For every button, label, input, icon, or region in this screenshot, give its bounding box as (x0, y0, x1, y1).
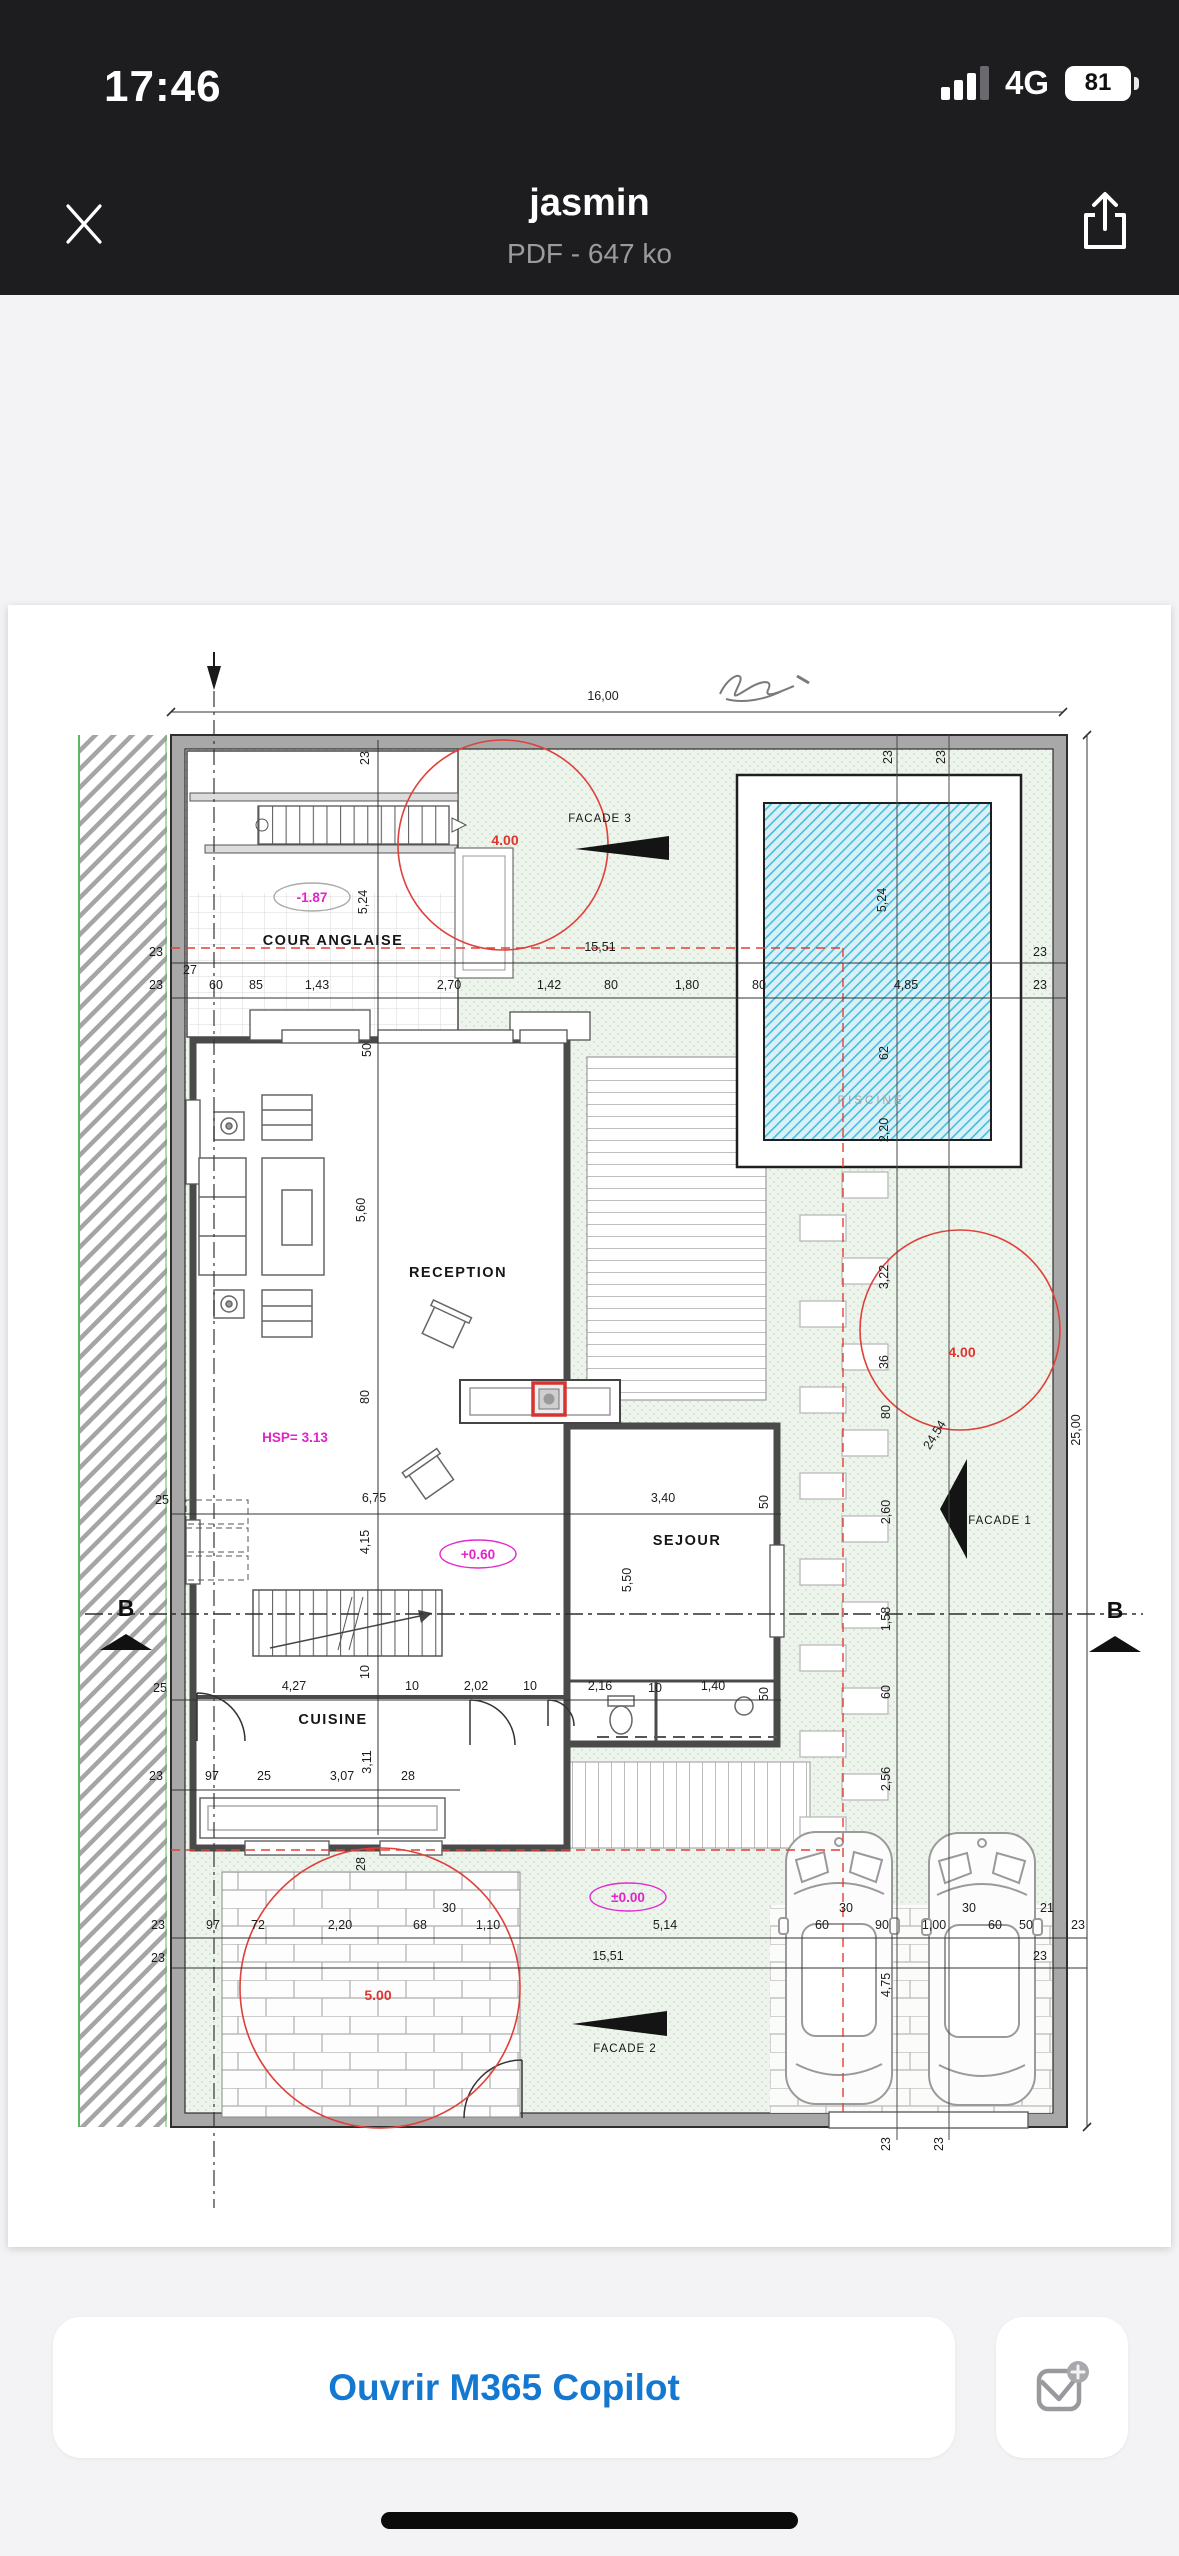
svg-text:30: 30 (962, 1901, 976, 1915)
svg-text:2,60: 2,60 (879, 1500, 893, 1524)
svg-text:80: 80 (358, 1390, 372, 1404)
share-icon (1078, 189, 1132, 253)
svg-text:25: 25 (257, 1769, 271, 1783)
status-right-cluster: 4G 81 (941, 64, 1131, 102)
svg-text:10: 10 (523, 1679, 537, 1693)
car-2 (922, 1833, 1042, 2105)
svg-text:30: 30 (839, 1901, 853, 1915)
svg-text:B: B (118, 1595, 135, 1621)
svg-text:23: 23 (149, 978, 163, 992)
svg-text:50: 50 (757, 1495, 771, 1509)
svg-text:23: 23 (1033, 978, 1047, 992)
svg-text:50: 50 (1019, 1918, 1033, 1932)
svg-text:HSP= 3.13: HSP= 3.13 (262, 1430, 328, 1445)
svg-text:62: 62 (877, 1046, 891, 1060)
svg-text:23: 23 (932, 2137, 946, 2151)
svg-text:30: 30 (442, 1901, 456, 1915)
floor-plan-drawing: 16,002323235,245,244.00-1.87COUR ANGLAIS… (8, 605, 1171, 2247)
svg-text:23: 23 (149, 945, 163, 959)
svg-text:1,00: 1,00 (922, 1918, 946, 1932)
svg-text:RECEPTION: RECEPTION (409, 1265, 507, 1281)
svg-text:3,22: 3,22 (877, 1265, 891, 1289)
signature-scribble (720, 676, 794, 701)
svg-text:25: 25 (155, 1493, 169, 1507)
phone-screen: 17:46 4G 81 jasmin PDF - 647 ko (0, 0, 1179, 2556)
svg-text:4,75: 4,75 (879, 1973, 893, 1997)
svg-text:50: 50 (757, 1687, 771, 1701)
svg-text:SEJOUR: SEJOUR (653, 1533, 722, 1549)
svg-text:1,80: 1,80 (675, 978, 699, 992)
svg-text:23: 23 (879, 2137, 893, 2151)
svg-text:4.00: 4.00 (948, 1344, 975, 1360)
svg-text:5,24: 5,24 (356, 890, 370, 914)
svg-text:36: 36 (877, 1355, 891, 1369)
svg-text:5,24: 5,24 (875, 888, 889, 912)
stove (533, 1383, 565, 1415)
svg-text:50: 50 (360, 1043, 374, 1057)
svg-text:60: 60 (209, 978, 223, 992)
svg-text:10: 10 (358, 1665, 372, 1679)
svg-text:4,27: 4,27 (282, 1679, 306, 1693)
svg-text:80: 80 (879, 1405, 893, 1419)
svg-text:1,10: 1,10 (476, 1918, 500, 1932)
svg-text:23: 23 (358, 751, 372, 765)
svg-text:PISCINE: PISCINE (837, 1095, 904, 1107)
svg-text:27: 27 (183, 963, 197, 977)
svg-text:23: 23 (151, 1951, 165, 1965)
svg-text:25: 25 (153, 1681, 167, 1695)
svg-text:23: 23 (1071, 1918, 1085, 1932)
svg-text:90: 90 (875, 1918, 889, 1932)
document-meta: PDF - 647 ko (0, 238, 1179, 270)
svg-text:FACADE 1: FACADE 1 (968, 1515, 1032, 1527)
new-mail-button[interactable] (996, 2317, 1128, 2458)
svg-text:B: B (1107, 1597, 1124, 1623)
svg-text:21: 21 (1040, 1901, 1054, 1915)
battery-percent: 81 (1085, 69, 1112, 97)
svg-text:23: 23 (881, 750, 895, 764)
svg-text:3,40: 3,40 (651, 1491, 675, 1505)
svg-text:28: 28 (401, 1769, 415, 1783)
svg-text:23: 23 (934, 750, 948, 764)
svg-text:23: 23 (151, 1918, 165, 1932)
signal-bars-icon (941, 66, 989, 100)
share-button[interactable] (1075, 186, 1135, 256)
svg-text:5,14: 5,14 (653, 1918, 677, 1932)
svg-text:15,51: 15,51 (592, 1949, 623, 1963)
svg-text:23: 23 (1033, 1949, 1047, 1963)
svg-text:23: 23 (149, 1769, 163, 1783)
open-copilot-button[interactable]: Ouvrir M365 Copilot (53, 2317, 955, 2458)
svg-text:1,58: 1,58 (879, 1607, 893, 1631)
svg-text:97: 97 (206, 1918, 220, 1932)
svg-text:16,00: 16,00 (587, 689, 618, 703)
axis-arrow (207, 666, 221, 690)
svg-text:+0.60: +0.60 (461, 1547, 495, 1562)
network-type-label: 4G (1005, 64, 1049, 102)
status-time: 17:46 (104, 62, 222, 112)
svg-text:97: 97 (205, 1769, 219, 1783)
open-copilot-label: Ouvrir M365 Copilot (328, 2367, 680, 2409)
svg-text:2,16: 2,16 (588, 1679, 612, 1693)
svg-text:5,60: 5,60 (354, 1198, 368, 1222)
svg-text:4,85: 4,85 (894, 978, 918, 992)
svg-text:FACADE 2: FACADE 2 (593, 2043, 657, 2055)
svg-text:60: 60 (879, 1685, 893, 1699)
garage-gate (829, 2112, 1028, 2128)
svg-text:80: 80 (752, 978, 766, 992)
svg-text:2,02: 2,02 (464, 1679, 488, 1693)
svg-text:10: 10 (648, 1681, 662, 1695)
svg-text:2,56: 2,56 (879, 1767, 893, 1791)
svg-text:2,20: 2,20 (328, 1918, 352, 1932)
svg-text:4.00: 4.00 (491, 832, 518, 848)
svg-text:2,20: 2,20 (877, 1118, 891, 1142)
home-indicator[interactable] (381, 2512, 798, 2529)
svg-text:60: 60 (815, 1918, 829, 1932)
svg-text:COUR ANGLAISE: COUR ANGLAISE (263, 933, 404, 949)
svg-text:80: 80 (604, 978, 618, 992)
pdf-page[interactable]: 16,002323235,245,244.00-1.87COUR ANGLAIS… (8, 605, 1171, 2247)
svg-text:-1.87: -1.87 (297, 890, 328, 905)
svg-text:85: 85 (249, 978, 263, 992)
svg-text:72: 72 (251, 1918, 265, 1932)
svg-text:2,70: 2,70 (437, 978, 461, 992)
pool (737, 775, 1021, 1167)
svg-text:5,50: 5,50 (620, 1568, 634, 1592)
svg-text:25,00: 25,00 (1069, 1414, 1083, 1445)
svg-text:6,75: 6,75 (362, 1491, 386, 1505)
svg-text:1,43: 1,43 (305, 978, 329, 992)
envelope-plus-icon (1031, 2357, 1093, 2419)
svg-text:4,15: 4,15 (358, 1530, 372, 1554)
svg-text:3,07: 3,07 (330, 1769, 354, 1783)
svg-text:15,51: 15,51 (584, 940, 615, 954)
svg-text:5.00: 5.00 (364, 1987, 391, 2003)
svg-text:1,40: 1,40 (701, 1679, 725, 1693)
svg-text:10: 10 (405, 1679, 419, 1693)
svg-text:28: 28 (354, 1857, 368, 1871)
svg-text:FACADE 3: FACADE 3 (568, 813, 632, 825)
document-title: jasmin (0, 182, 1179, 225)
svg-text:CUISINE: CUISINE (298, 1712, 367, 1728)
svg-text:60: 60 (988, 1918, 1002, 1932)
top-dark-area: 17:46 4G 81 jasmin PDF - 647 ko (0, 0, 1179, 295)
svg-text:3,11: 3,11 (360, 1750, 374, 1773)
section-marker-right (1089, 1636, 1141, 1652)
svg-text:23: 23 (1033, 945, 1047, 959)
exterior-stair (258, 806, 449, 844)
battery-icon: 81 (1065, 66, 1131, 101)
svg-text:1,42: 1,42 (537, 978, 561, 992)
svg-text:±0.00: ±0.00 (611, 1890, 645, 1905)
svg-text:68: 68 (413, 1918, 427, 1932)
